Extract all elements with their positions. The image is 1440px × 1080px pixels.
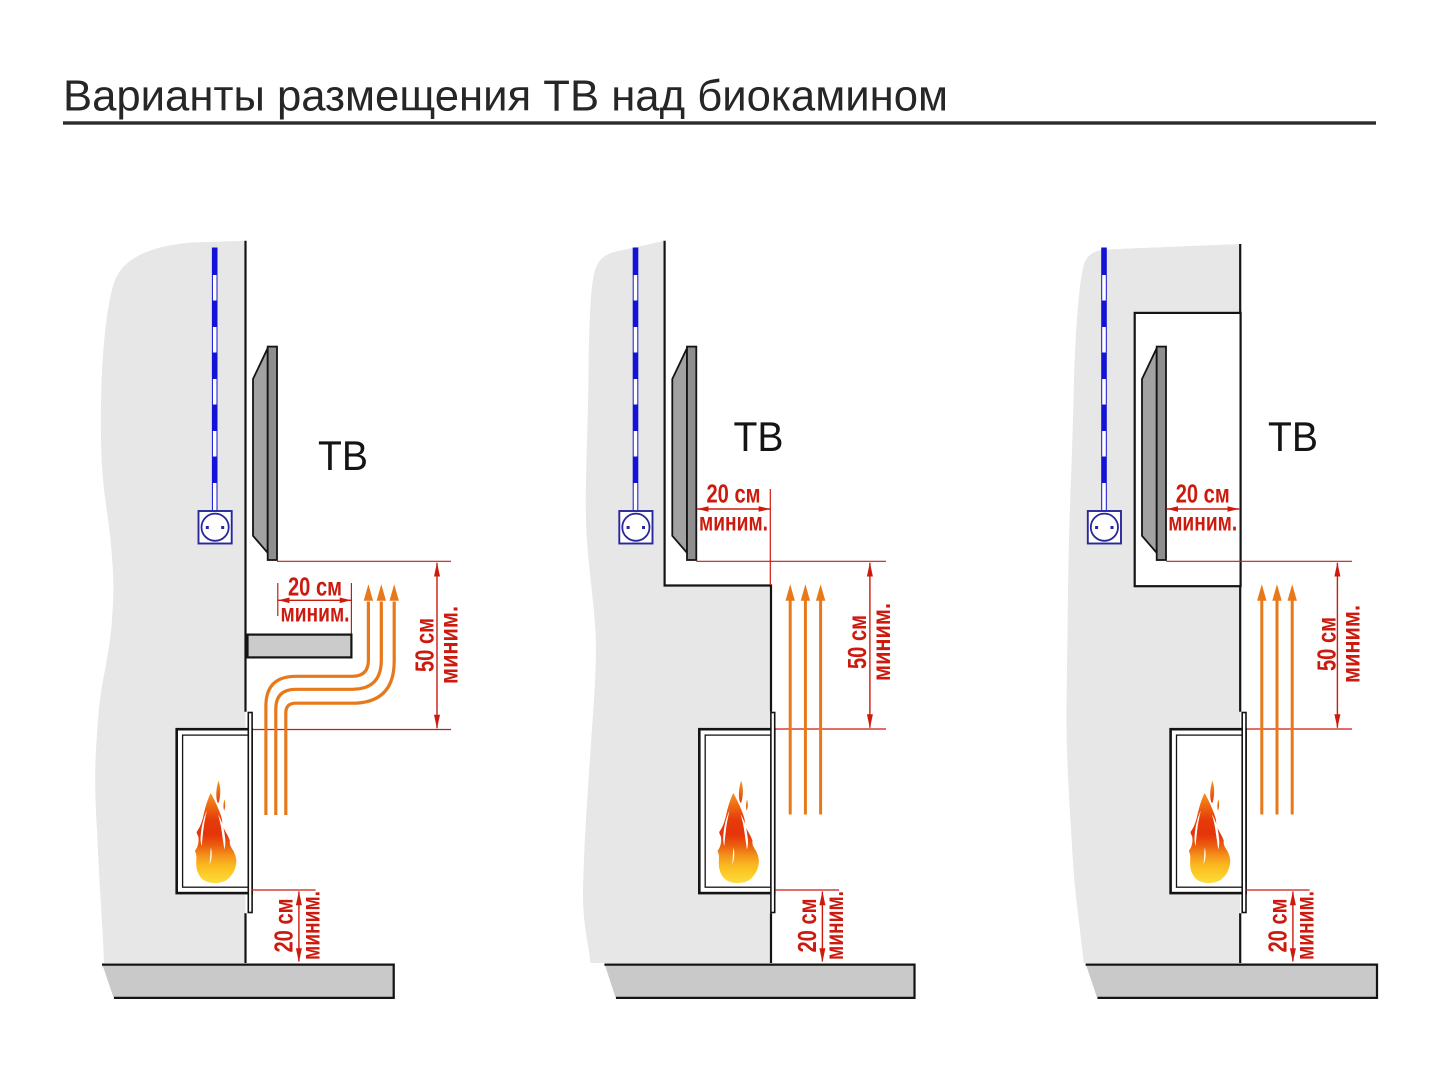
svg-text:20 см: 20 см	[1176, 479, 1230, 509]
svg-text:миним.: миним.	[699, 507, 768, 537]
svg-text:Варианты размещения ТВ над био: Варианты размещения ТВ над биокамином	[63, 73, 948, 121]
svg-text:миним.: миним.	[1168, 507, 1237, 537]
svg-text:миним.: миним.	[434, 606, 464, 684]
svg-text:миним.: миним.	[281, 598, 350, 628]
svg-text:ТВ: ТВ	[1268, 413, 1318, 460]
svg-text:ТВ: ТВ	[734, 413, 784, 460]
svg-text:ТВ: ТВ	[318, 432, 368, 479]
svg-text:миним.: миним.	[1335, 605, 1365, 683]
svg-text:миним.: миним.	[866, 603, 896, 681]
svg-text:20 см: 20 см	[707, 479, 761, 509]
